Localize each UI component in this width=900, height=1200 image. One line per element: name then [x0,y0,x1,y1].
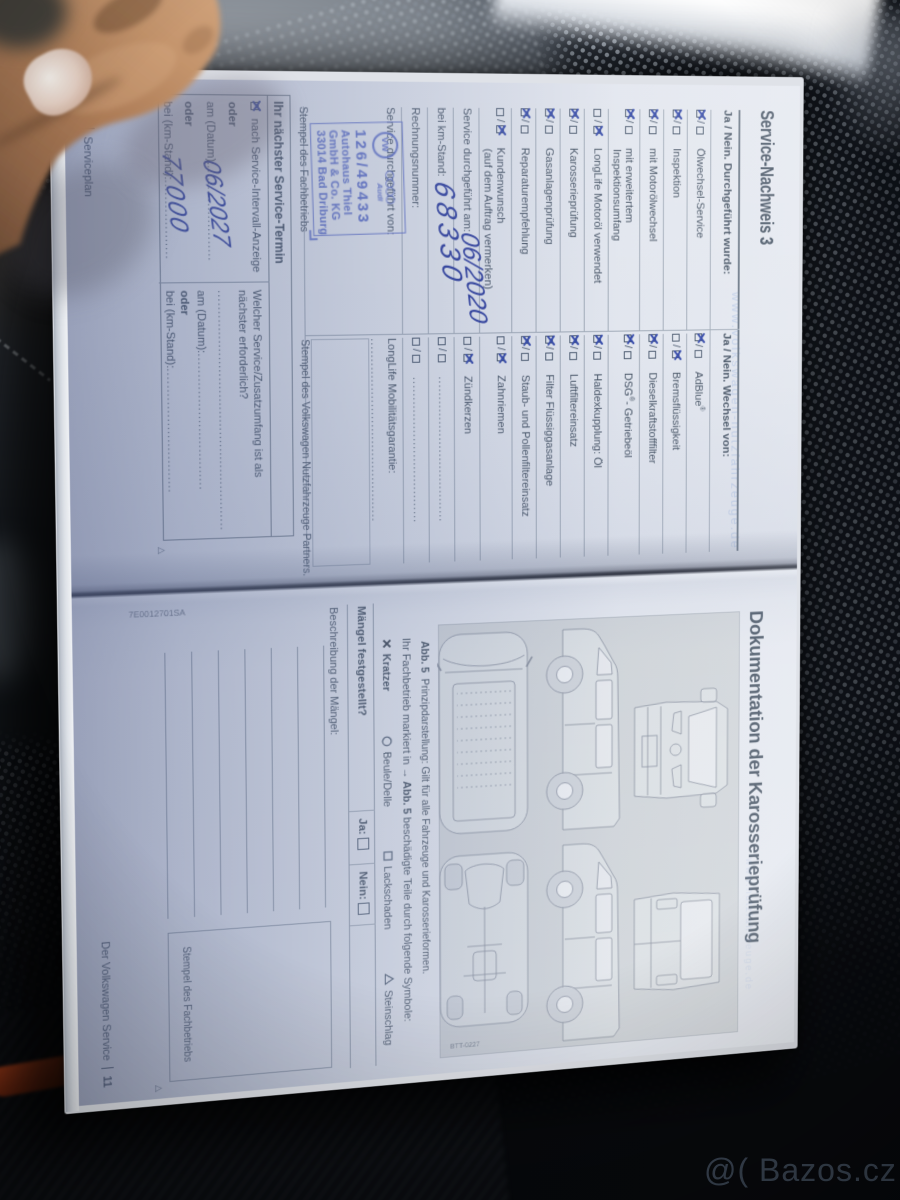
svg-text:BTT-0227: BTT-0227 [450,1041,480,1050]
